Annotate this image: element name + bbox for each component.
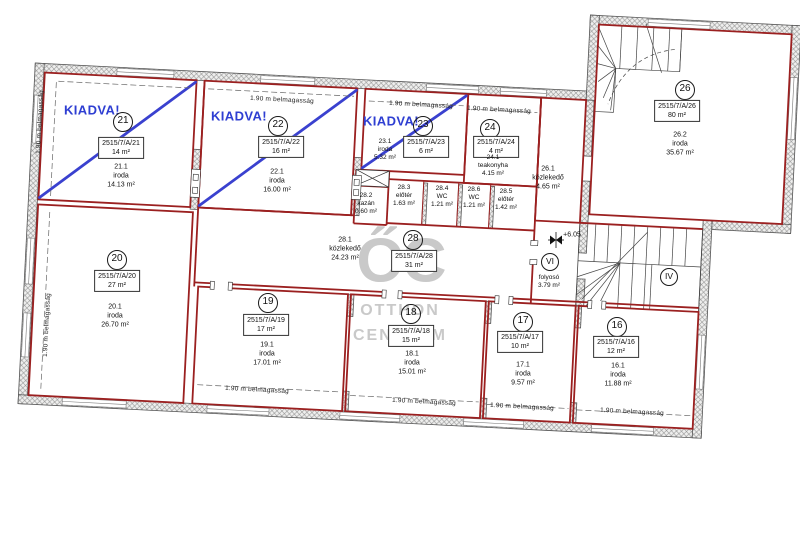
room-no: 18.1 xyxy=(398,351,426,360)
height-label-left-20: 1.90 m belmagasság xyxy=(42,293,52,357)
level-marker-label: +6.05 xyxy=(563,232,581,239)
room-type: iroda xyxy=(107,173,135,182)
height-label-bottom-17: 1.90 m belmagasság xyxy=(490,402,554,412)
unit-16-number-badge: 16 xyxy=(607,317,627,337)
unit-23-lot-box: 2515/7/A/23 6 m² xyxy=(403,136,449,158)
room-28-2-info: 28.2 kazán 0.60 m² xyxy=(355,192,377,216)
lot-number: 2515/7/A/18 xyxy=(392,327,430,336)
corridor-iv-badge: IV xyxy=(660,268,678,286)
room-area: 3.79 m² xyxy=(538,282,560,290)
lot-number: 2515/7/A/22 xyxy=(262,138,300,147)
unit-16-lot-box: 2515/7/A/16 12 m² xyxy=(593,336,639,358)
lot-area: 15 m² xyxy=(392,336,430,345)
lot-number: 2515/7/A/17 xyxy=(501,333,539,342)
room-area: 0.60 m² xyxy=(355,208,377,216)
room-no: 28.4 xyxy=(431,185,453,193)
room-area: 1.21 m² xyxy=(431,201,453,209)
unit-17-room-info: 17.1 iroda 9.57 m² xyxy=(511,362,535,389)
unit-20-room-info: 20.1 iroda 26.70 m² xyxy=(101,304,129,331)
room-no: 28.6 xyxy=(463,186,485,194)
lot-area: 31 m² xyxy=(395,261,433,270)
lot-number: 2515/7/A/19 xyxy=(247,316,285,325)
room-type: iroda xyxy=(374,146,396,154)
room-28-4-info: 28.4 WC 1.21 m² xyxy=(431,185,453,209)
unit-22-room-info: 22.1 iroda 16.00 m² xyxy=(263,169,291,196)
lot-area: 27 m² xyxy=(98,281,136,290)
height-label-top-23: 1.90 m belmagasság xyxy=(389,100,453,110)
lot-number: 2515/7/A/26 xyxy=(658,102,696,111)
lot-number: 2515/7/A/24 xyxy=(477,138,515,147)
room-no: 17.1 xyxy=(511,362,535,371)
room-type: iroda xyxy=(604,372,631,381)
unit-23-room-info: 23.1 iroda 5.32 m² xyxy=(374,138,396,162)
unit-26-room-info: 26.2 iroda 35.67 m² xyxy=(666,132,694,159)
corridor-vi-info: folyosó 3.79 m² xyxy=(538,274,560,290)
unit-28-lot-box: 2515/7/A/28 31 m² xyxy=(391,250,437,272)
room-type: iroda xyxy=(253,351,281,360)
lot-area: 6 m² xyxy=(407,147,445,156)
lot-number: 2515/7/A/20 xyxy=(98,272,136,281)
unit-20-number-badge: 20 xyxy=(107,250,127,270)
unit-26-lot-box: 2515/7/A/26 80 m² xyxy=(654,100,700,122)
room-no: 28.1 xyxy=(329,237,361,246)
room-type: előtér xyxy=(393,192,415,200)
room-type: teakonyha xyxy=(478,162,508,170)
room-no: 21.1 xyxy=(107,164,135,173)
room-type: iroda xyxy=(666,141,694,150)
lot-number: 2515/7/A/28 xyxy=(395,252,433,261)
height-label-bottom-18: 1.90 m belmagasság xyxy=(392,397,456,407)
height-label-top-22: 1.90 m belmagasság xyxy=(250,95,314,105)
room-area: 15.01 m² xyxy=(398,368,426,377)
room-no: 28.5 xyxy=(495,188,517,196)
unit-21-number-badge: 21 xyxy=(113,112,133,132)
room-area: 17.01 m² xyxy=(253,359,281,368)
room-28-5-info: 28.5 előtér 1.42 m² xyxy=(495,188,517,212)
room-no: 28.2 xyxy=(355,192,377,200)
unit-23-number-badge: 23 xyxy=(413,116,433,136)
room-area: 9.57 m² xyxy=(511,379,535,388)
floorplan-page: ŐC OTTHON CENTRUM xyxy=(0,0,800,552)
room-type: előtér xyxy=(495,196,517,204)
room-area: 1.42 m² xyxy=(495,204,517,212)
room-type: iroda xyxy=(511,371,535,380)
unit-16-room-info: 16.1 iroda 11.88 m² xyxy=(604,363,631,390)
height-label-left-21: 1.90 m belmagasság xyxy=(35,90,45,154)
room-28-6-info: 28.6 WC 1.21 m² xyxy=(463,186,485,210)
room-type: WC xyxy=(431,193,453,201)
unit-22-lot-box: 2515/7/A/22 16 m² xyxy=(258,136,304,158)
room-no: 16.1 xyxy=(604,363,631,372)
room-type: WC xyxy=(463,194,485,202)
unit-22-number-badge: 22 xyxy=(268,116,288,136)
room-area: 4.15 m² xyxy=(478,170,508,178)
unit-24-room-info: 24.1 teakonyha 4.15 m² xyxy=(478,154,508,178)
room-no: 22.1 xyxy=(263,169,291,178)
label-layer: KIADVA! 21 2515/7/A/21 14 m² 21.1 iroda … xyxy=(0,0,800,552)
corridor-vi-badge: VI xyxy=(541,253,559,271)
unit-17-lot-box: 2515/7/A/17 10 m² xyxy=(497,331,543,353)
room-type: közlekedő xyxy=(329,246,361,255)
room-area: 5.32 m² xyxy=(374,154,396,162)
unit-18-lot-box: 2515/7/A/18 15 m² xyxy=(388,325,434,347)
room-type: folyosó xyxy=(538,274,560,282)
room-type: iroda xyxy=(101,313,129,322)
room-no: 28.3 xyxy=(393,184,415,192)
lot-area: 10 m² xyxy=(501,342,539,351)
unit-20-lot-box: 2515/7/A/20 27 m² xyxy=(94,270,140,292)
room-no: 19.1 xyxy=(253,342,281,351)
room-28-3-info: 28.3 előtér 1.63 m² xyxy=(393,184,415,208)
room-type: iroda xyxy=(398,360,426,369)
room-area: 35.67 m² xyxy=(666,149,694,158)
unit-21-kiadva-label: KIADVA! xyxy=(64,103,120,118)
unit-17-number-badge: 17 xyxy=(513,312,533,332)
height-label-bottom-19: 1.90 m belmagasság xyxy=(225,385,289,395)
height-label-bottom-16: 1.90 m belmagasság xyxy=(600,407,664,417)
unit-19-lot-box: 2515/7/A/19 17 m² xyxy=(243,314,289,336)
room-type: közlekedő xyxy=(532,175,564,184)
room-area: 11.88 m² xyxy=(604,380,631,389)
room-no: 24.1 xyxy=(478,154,508,162)
unit-26-corridor-info: 26.1 közlekedő 4.65 m² xyxy=(532,166,564,193)
unit-21-room-info: 21.1 iroda 14.13 m² xyxy=(107,164,135,191)
lot-number: 2515/7/A/21 xyxy=(102,139,140,148)
unit-19-number-badge: 19 xyxy=(258,293,278,313)
height-label-top-24: 1.90 m belmagasság xyxy=(467,105,531,115)
unit-22-kiadva-label: KIADVA! xyxy=(211,109,267,124)
lot-area: 16 m² xyxy=(262,147,300,156)
lot-area: 80 m² xyxy=(658,111,696,120)
lot-area: 14 m² xyxy=(102,148,140,157)
room-no: 26.2 xyxy=(666,132,694,141)
room-area: 26.70 m² xyxy=(101,321,129,330)
unit-23-kiadva-label: KIADVA! xyxy=(363,114,419,129)
lot-number: 2515/7/A/23 xyxy=(407,138,445,147)
unit-19-room-info: 19.1 iroda 17.01 m² xyxy=(253,342,281,369)
room-no: 20.1 xyxy=(101,304,129,313)
room-type: kazán xyxy=(355,200,377,208)
room-area: 1.21 m² xyxy=(463,202,485,210)
room-no: 23.1 xyxy=(374,138,396,146)
unit-28-corridor-info: 28.1 közlekedő 24.23 m² xyxy=(329,237,361,264)
lot-area: 17 m² xyxy=(247,325,285,334)
unit-18-number-badge: 18 xyxy=(401,304,421,324)
room-type: iroda xyxy=(263,178,291,187)
unit-28-number-badge: 28 xyxy=(403,230,423,250)
room-area: 16.00 m² xyxy=(263,186,291,195)
unit-21-lot-box: 2515/7/A/21 14 m² xyxy=(98,137,144,159)
lot-area: 12 m² xyxy=(597,347,635,356)
room-area: 4.65 m² xyxy=(532,183,564,192)
lot-number: 2515/7/A/16 xyxy=(597,338,635,347)
unit-26-number-badge: 26 xyxy=(675,80,695,100)
room-area: 1.63 m² xyxy=(393,200,415,208)
room-no: 26.1 xyxy=(532,166,564,175)
room-area: 14.13 m² xyxy=(107,181,135,190)
room-area: 24.23 m² xyxy=(329,254,361,263)
unit-18-room-info: 18.1 iroda 15.01 m² xyxy=(398,351,426,378)
